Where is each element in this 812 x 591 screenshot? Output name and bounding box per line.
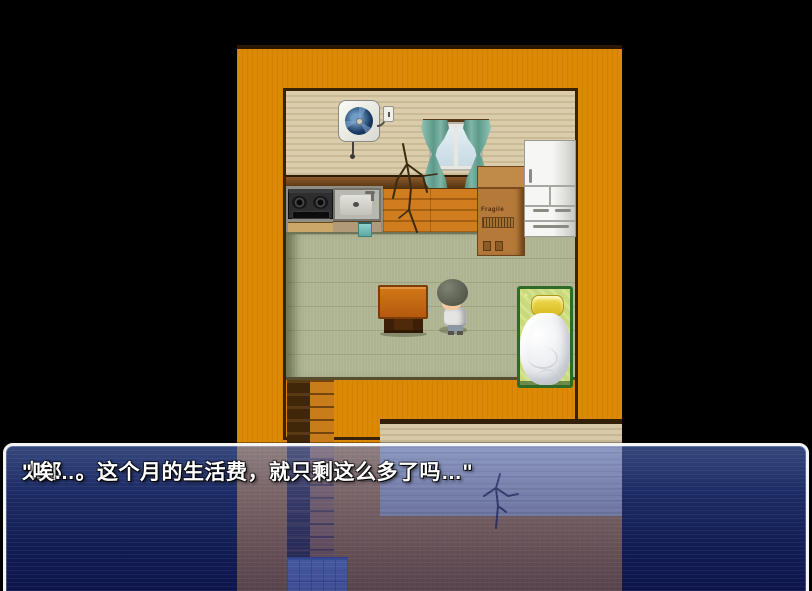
kitchen-sink — [333, 188, 381, 221]
blanket-fold — [528, 347, 558, 369]
fan-pull-cord — [352, 142, 354, 154]
fridge-seam — [525, 205, 575, 207]
faucet-spout — [371, 192, 374, 201]
hand-towel — [358, 222, 372, 237]
box-stamp — [483, 241, 491, 251]
low-table — [378, 285, 428, 319]
stove-cabinet — [288, 222, 333, 232]
table-legs — [384, 319, 423, 333]
fan-pull-ball — [350, 154, 355, 159]
box-flap — [478, 167, 524, 189]
fridge-drawer-handle — [533, 209, 549, 212]
stove-burner — [313, 196, 328, 209]
sink-drain — [353, 202, 359, 207]
outlet-slot — [388, 112, 390, 117]
player-character-shoe — [457, 331, 463, 335]
box-barcode — [482, 217, 514, 228]
blanket-fold — [536, 369, 560, 387]
blanket — [520, 313, 570, 385]
stove-grill-slot — [292, 211, 330, 219]
fridge-door-split — [549, 187, 551, 205]
fridge-seam — [525, 220, 575, 222]
window-mullion — [454, 127, 458, 166]
bed — [517, 286, 573, 388]
refrigerator — [524, 140, 576, 237]
message-window[interactable]: 太郎 "唉…。这个月的生活费，就只剩这么多了吗…" — [3, 443, 809, 591]
fridge-drawer-handle — [533, 225, 569, 228]
power-outlet-icon — [383, 106, 394, 122]
stove-burner — [292, 196, 307, 209]
fridge-drawer-handle — [555, 209, 571, 212]
dialog-text: "唉…。这个月的生活费，就只剩这么多了吗…" — [22, 459, 473, 486]
ventilation-fan-icon — [338, 100, 380, 142]
box-fragile-label: Fragile — [481, 207, 504, 213]
player-character-shoe — [448, 331, 454, 335]
box-stamp — [495, 241, 503, 251]
cardboard-box: Fragile — [477, 166, 525, 256]
sink-cabinet — [333, 221, 381, 232]
fan-center-cap — [356, 118, 363, 125]
fridge-handle — [529, 169, 532, 183]
game-screen[interactable]: Fragile 太郎 — [0, 0, 812, 591]
player-character-hair — [437, 279, 468, 306]
